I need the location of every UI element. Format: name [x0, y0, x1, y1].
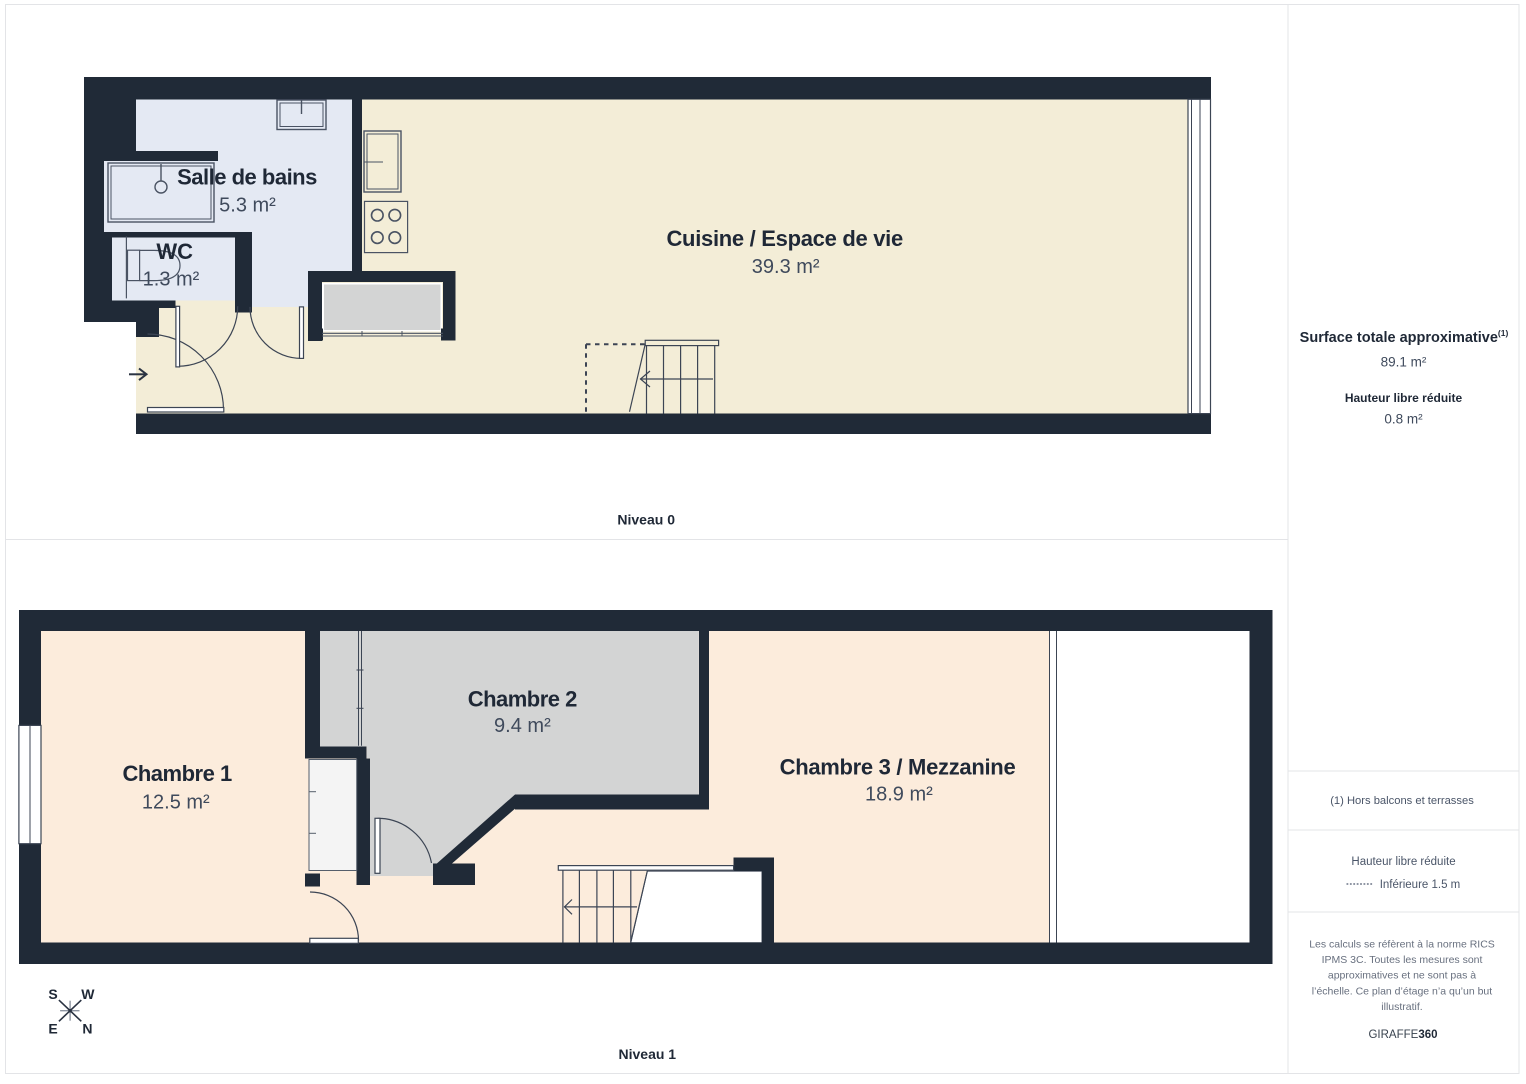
- svg-text:Niveau 0: Niveau 0: [617, 512, 675, 528]
- svg-text:89.1 m²: 89.1 m²: [1381, 355, 1427, 370]
- svg-text:Chambre 1: Chambre 1: [122, 761, 231, 786]
- svg-text:1.3 m²: 1.3 m²: [143, 268, 200, 290]
- svg-text:S: S: [48, 986, 57, 1002]
- svg-text:IPMS 3C. Toutes les mesures so: IPMS 3C. Toutes les mesures sont: [1322, 954, 1483, 966]
- svg-text:N: N: [82, 1021, 92, 1037]
- svg-text:12.5 m²: 12.5 m²: [142, 791, 210, 813]
- svg-text:0.8 m²: 0.8 m²: [1384, 412, 1423, 427]
- svg-text:Salle de bains: Salle de bains: [177, 165, 317, 190]
- svg-text:E: E: [48, 1021, 57, 1037]
- svg-text:39.3 m²: 39.3 m²: [752, 256, 820, 278]
- svg-text:Chambre 2: Chambre 2: [468, 686, 577, 711]
- svg-text:5.3 m²: 5.3 m²: [219, 194, 276, 216]
- svg-text:GIRAFFE360: GIRAFFE360: [1368, 1029, 1437, 1041]
- svg-text:Hauteur libre réduite: Hauteur libre réduite: [1351, 856, 1455, 868]
- svg-text:WC: WC: [156, 239, 193, 264]
- svg-text:(1) Hors balcons et terrasses: (1) Hors balcons et terrasses: [1330, 795, 1474, 807]
- svg-text:Niveau 1: Niveau 1: [619, 1046, 677, 1062]
- svg-text:Chambre 3 / Mezzanine: Chambre 3 / Mezzanine: [780, 754, 1016, 779]
- svg-text:Surface totale approximative(1: Surface totale approximative(1): [1300, 328, 1509, 346]
- svg-text:18.9 m²: 18.9 m²: [865, 783, 933, 805]
- svg-text:Cuisine / Espace de vie: Cuisine / Espace de vie: [666, 226, 902, 251]
- svg-text:l’échelle. Ce plan d’étage n’a: l’échelle. Ce plan d’étage n’a qu’un but: [1312, 985, 1492, 997]
- svg-text:W: W: [81, 986, 95, 1002]
- svg-text:Inférieure 1.5 m: Inférieure 1.5 m: [1380, 879, 1461, 891]
- svg-text:approximatives et ne sont pas: approximatives et ne sont pas à: [1328, 970, 1476, 982]
- svg-text:Hauteur libre réduite: Hauteur libre réduite: [1345, 391, 1463, 405]
- svg-text:9.4 m²: 9.4 m²: [494, 715, 551, 737]
- svg-text:Les calculs se réfèrent à la n: Les calculs se réfèrent à la norme RICS: [1309, 939, 1495, 951]
- svg-text:illustratif.: illustratif.: [1381, 1001, 1422, 1013]
